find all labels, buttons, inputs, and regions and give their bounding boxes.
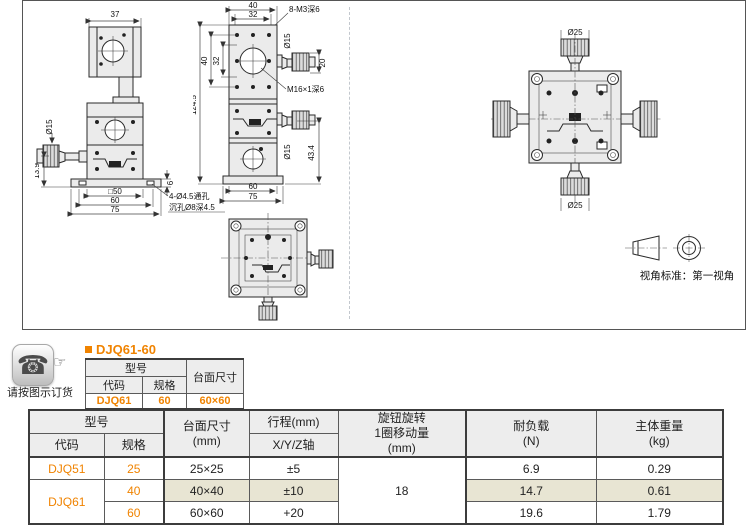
base-plate-side (71, 179, 161, 187)
z-knob (277, 53, 315, 71)
cell-spec: 40 (104, 480, 164, 502)
drawing-frame: 37 (22, 0, 746, 330)
spec-header-spec: 规格 (104, 434, 164, 458)
dim-front-60: 60 (249, 182, 258, 191)
cell-knob-move: 18 (338, 457, 466, 524)
stage-body-side (87, 103, 143, 179)
dashed-separator (349, 7, 350, 319)
cell-load: 6.9 (466, 457, 596, 480)
spec-header-travel: 行程(mm) (249, 410, 338, 434)
top-view-drawing: Ø25 (485, 27, 667, 215)
frustum-icon (625, 236, 667, 260)
crosshair-circle-icon (673, 234, 705, 262)
ordering-mini-table: 型号 台面尺寸 代码 规格 DJQ61 60 60×60 (85, 358, 244, 410)
front-view-drawing: 40 32 8-M3深6 Ø15 20 40 (193, 1, 341, 213)
dim-knob-dia-bottom: Ø25 (567, 201, 583, 210)
right-knob (621, 101, 657, 137)
dim-knob-height: 13.9 (35, 163, 41, 179)
dim-plate-size: □50 (108, 187, 122, 196)
dim-yknob-dia: Ø15 (283, 144, 292, 160)
pointing-hand-icon: ☞ (53, 353, 66, 371)
spec-header-travel-axis: X/Y/Z轴 (249, 434, 338, 458)
cell-size: 25×25 (164, 457, 249, 480)
first-angle-symbol: 视角标准：第一视角 (623, 233, 750, 289)
bottom-view-right-knob (307, 250, 333, 268)
spec-header-knob: 旋钮旋转 1圈移动量 (mm) (338, 410, 466, 457)
note-tap-m16: M16×1深6 (287, 85, 325, 94)
cell-load: 14.7 (466, 480, 596, 502)
dim-zknob-len: 20 (318, 58, 327, 67)
dim-top-w40: 40 (249, 1, 258, 10)
mini-header-code: 代码 (86, 377, 143, 394)
mini-header-spec: 规格 (143, 377, 187, 394)
bottom-view-bottom-knob (259, 297, 277, 320)
y-knob (277, 111, 315, 129)
table-row: DJQ51 25 25×25 ±5 18 6.9 0.29 (29, 457, 723, 480)
y-stage-front (229, 99, 277, 143)
dim-total-height: 124.5 (193, 94, 198, 115)
cell-travel: ±10 (249, 480, 338, 502)
dim-zknob-dia: Ø15 (283, 33, 292, 49)
note-tap-8m3: 8-M3深6 (289, 5, 320, 14)
dim-knob-dia: Ø15 (45, 119, 54, 135)
phone-icon: ☎ (17, 352, 49, 378)
view-standard-label: 视角标准：第一视角 (640, 269, 735, 282)
cell-weight: 0.61 (596, 480, 723, 502)
dim-top-width: 37 (111, 10, 120, 19)
dim-hole-span: 60 (111, 196, 120, 205)
mini-cell-spec: 60 (143, 394, 187, 410)
z-stage-front (229, 25, 277, 99)
mini-header-size: 台面尺寸 (187, 359, 244, 394)
spec-header-code: 代码 (29, 434, 104, 458)
orange-bullet-icon (85, 346, 92, 353)
product-title: DJQ61-60 (85, 342, 156, 357)
bottom-view-drawing (215, 213, 339, 325)
mini-header-model: 型号 (86, 359, 187, 377)
spec-header-weight: 主体重量 (kg) (596, 410, 723, 457)
left-knob (493, 101, 529, 137)
order-note-label: 请按图示订货 (0, 384, 80, 400)
dim-base-width: 75 (111, 205, 120, 214)
cell-code: DJQ51 (29, 457, 104, 480)
mini-cell-code: DJQ61 (86, 394, 143, 410)
product-title-text: DJQ61-60 (96, 342, 156, 357)
cell-weight: 0.29 (596, 457, 723, 480)
top-bracket (89, 27, 141, 103)
dim-left-32: 32 (212, 56, 221, 65)
catalog-page: { "colors": {"accent":"#f08300","row_hig… (0, 0, 750, 521)
cell-size: 40×40 (164, 480, 249, 502)
dim-front-75: 75 (249, 192, 258, 201)
mini-cell-size: 60×60 (187, 394, 244, 410)
cell-code: DJQ61 (29, 480, 104, 525)
bottom-knob (561, 163, 589, 195)
dim-left-40: 40 (200, 56, 209, 65)
spec-header-model: 型号 (29, 410, 164, 434)
dim-base-thickness: 6 (166, 180, 175, 185)
cell-spec: 25 (104, 457, 164, 480)
spec-header-size: 台面尺寸 (mm) (164, 410, 249, 457)
x-stage-front (223, 143, 283, 184)
phone-order-button[interactable]: ☎ (12, 344, 54, 386)
spec-table: 型号 台面尺寸 (mm) 行程(mm) 旋钮旋转 1圈移动量 (mm) 耐负载 … (28, 409, 724, 525)
spec-header-load: 耐负载 (N) (466, 410, 596, 457)
cell-travel: ±5 (249, 457, 338, 480)
dim-knob-axis-h: 43.4 (307, 145, 316, 161)
dim-top-w32: 32 (249, 10, 258, 19)
